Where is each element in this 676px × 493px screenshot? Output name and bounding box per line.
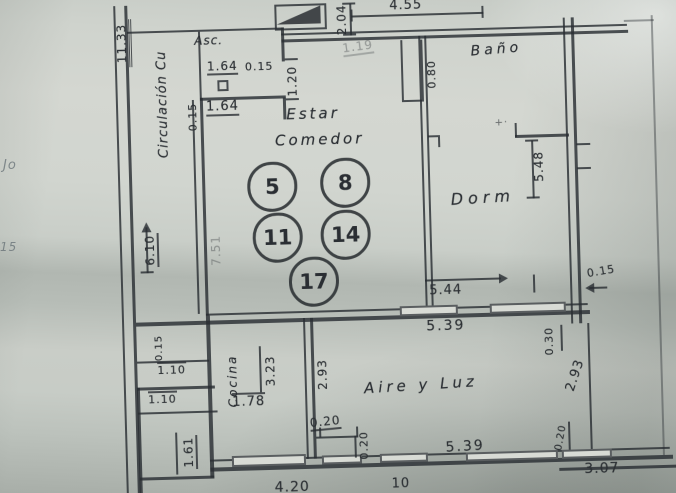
dim-label: 5.44 (429, 283, 462, 299)
dim-label: 6.10 (143, 233, 160, 267)
tick (141, 271, 154, 273)
tick (576, 143, 590, 145)
arrow-right-icon (499, 273, 513, 283)
wall-segment (316, 436, 358, 439)
dim-label: 1.10 (148, 391, 177, 407)
dim-label: 0.30 (542, 326, 557, 356)
dim-label: 0.20 (357, 430, 372, 460)
dim-label: 0.15 (586, 262, 616, 280)
dim-label: 0.15 (186, 102, 201, 132)
wall-segment (651, 15, 665, 455)
dim-label: 1.64 (206, 99, 239, 117)
unit-number: 8 (338, 171, 353, 195)
dim-label: 1.10 (157, 361, 186, 377)
dim-label: 0.15 (245, 60, 274, 74)
dim-label: 1.61 (181, 435, 198, 469)
unit-circle: 17 (288, 256, 339, 307)
wall-segment (206, 316, 215, 478)
room-label-dormitorio: Dorm (450, 186, 515, 209)
wall-segment (515, 134, 569, 139)
unit-circle: 5 (247, 161, 298, 212)
tick (481, 6, 483, 18)
arrow-left-icon (580, 283, 594, 293)
tick (527, 196, 540, 198)
wall-segment (624, 19, 654, 22)
dim-label: 0.80 (425, 57, 440, 91)
dim-label: 3.07 (584, 460, 620, 477)
room-label-ascensor: Asc. (194, 33, 223, 48)
floor-plan-photo: Jo 15 (0, 0, 676, 493)
unit-number: 5 (265, 175, 280, 199)
tick (285, 58, 298, 60)
wall-segment (200, 98, 209, 316)
arrow-up-icon (141, 217, 151, 232)
room-label-bano: Baño (470, 39, 523, 59)
dim-line (175, 433, 178, 475)
tick (577, 167, 591, 169)
plus-mark: +· (494, 117, 508, 128)
window-symbol (400, 305, 458, 317)
wall-segment (587, 323, 593, 457)
unit-circle: 8 (320, 157, 371, 208)
column-symbol (217, 80, 228, 91)
room-label-estar: Estar (286, 104, 340, 123)
wall-segment (139, 476, 214, 481)
dim-label: 11.33 (114, 19, 132, 67)
tick (533, 275, 536, 293)
dim-label: 2.93 (315, 356, 330, 392)
window-symbol (380, 453, 428, 463)
dim-line (349, 4, 352, 36)
floor-plan-drawing: Circulación Cu Asc. Estar Comedor Baño D… (0, 0, 676, 493)
dim-line (425, 277, 501, 281)
window-symbol (490, 302, 566, 314)
dim-label: 0.20 (309, 413, 341, 432)
dim-label: 10 (391, 476, 410, 492)
wall-segment (571, 17, 583, 323)
window-symbol (232, 454, 306, 467)
dim-label: 4.20 (274, 479, 310, 493)
wall-segment (138, 410, 218, 414)
dim-label: 1.19 (342, 37, 375, 57)
wall-segment (192, 100, 200, 314)
dim-label: 1.20 (285, 64, 300, 98)
window-symbol (562, 448, 612, 458)
tick (525, 139, 538, 141)
door-tick (438, 137, 440, 147)
wall-segment (303, 318, 309, 459)
room-label-aire-y-luz: Aire y Luz (363, 372, 478, 397)
dim-line (560, 325, 563, 351)
dim-label: 0.15 (152, 333, 167, 363)
unit-number: 14 (331, 222, 361, 247)
wall-segment (515, 123, 517, 137)
dim-label: 2.04 (334, 3, 349, 37)
dim-label: 2.93 (563, 354, 589, 393)
dim-label: 5.39 (426, 317, 466, 334)
dim-label: 7.51 (209, 233, 224, 267)
unit-circle: 11 (252, 212, 303, 263)
unit-number: 17 (299, 269, 329, 294)
dim-label: 3.23 (263, 354, 278, 388)
unit-number: 11 (263, 225, 293, 250)
dim-label: 4.55 (389, 0, 422, 13)
room-label-circulacion: Circulación Cu (153, 9, 173, 199)
dim-label: 5.48 (531, 149, 546, 183)
room-label-comedor: Comedor (275, 129, 365, 149)
dim-label: 1.78 (232, 392, 265, 410)
dim-label: 1.64 (207, 59, 238, 76)
tick (286, 98, 299, 100)
dim-label: 5.39 (445, 437, 485, 455)
dim-line (259, 346, 262, 392)
unit-circle: 14 (320, 209, 371, 260)
